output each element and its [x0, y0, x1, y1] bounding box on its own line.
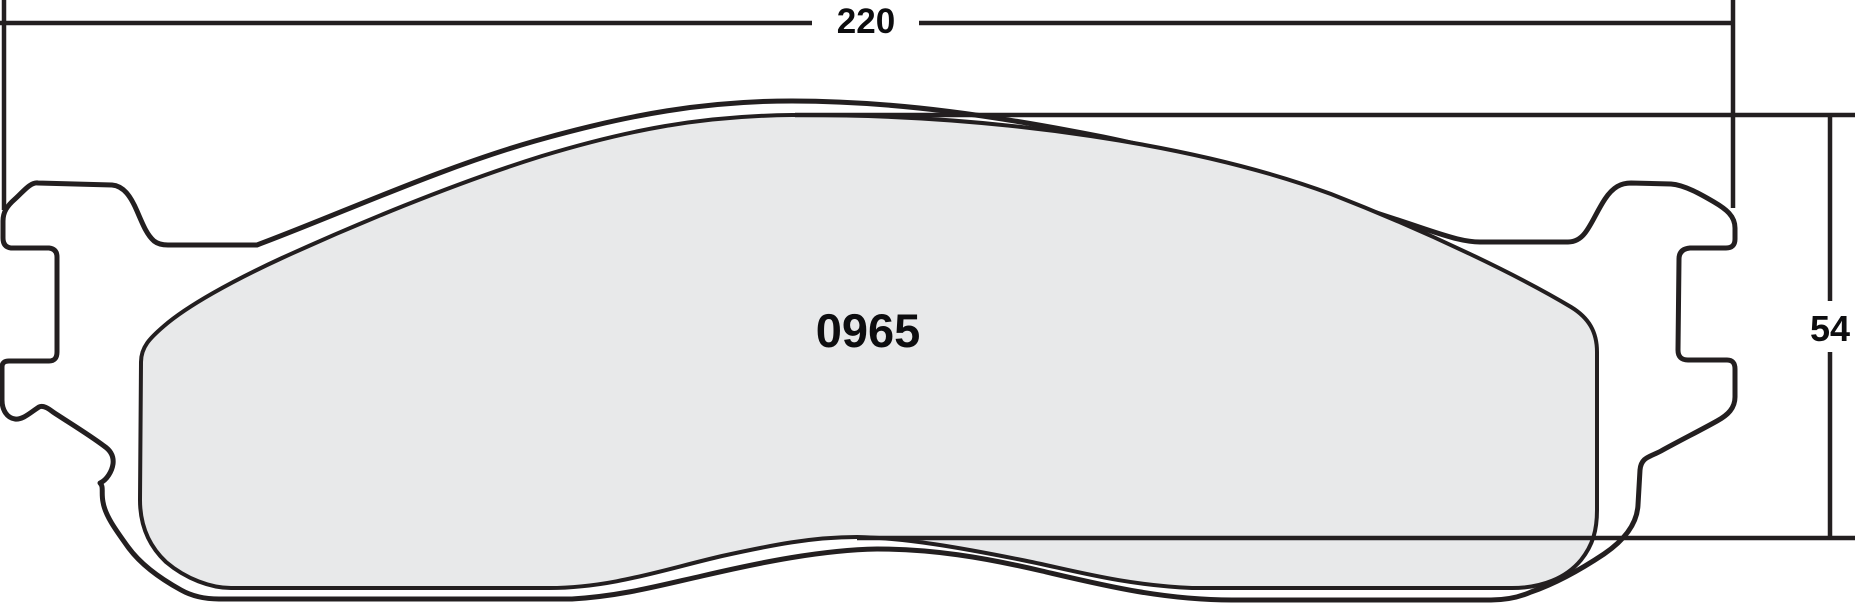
width-dimension-label: 220: [837, 2, 895, 41]
drawing-canvas: 220 0965 54: [0, 0, 1855, 604]
brake-pad-technical-drawing: 220 0965 54: [0, 0, 1855, 604]
part-number-label: 0965: [816, 304, 921, 357]
height-dimension-label: 54: [1810, 308, 1850, 349]
